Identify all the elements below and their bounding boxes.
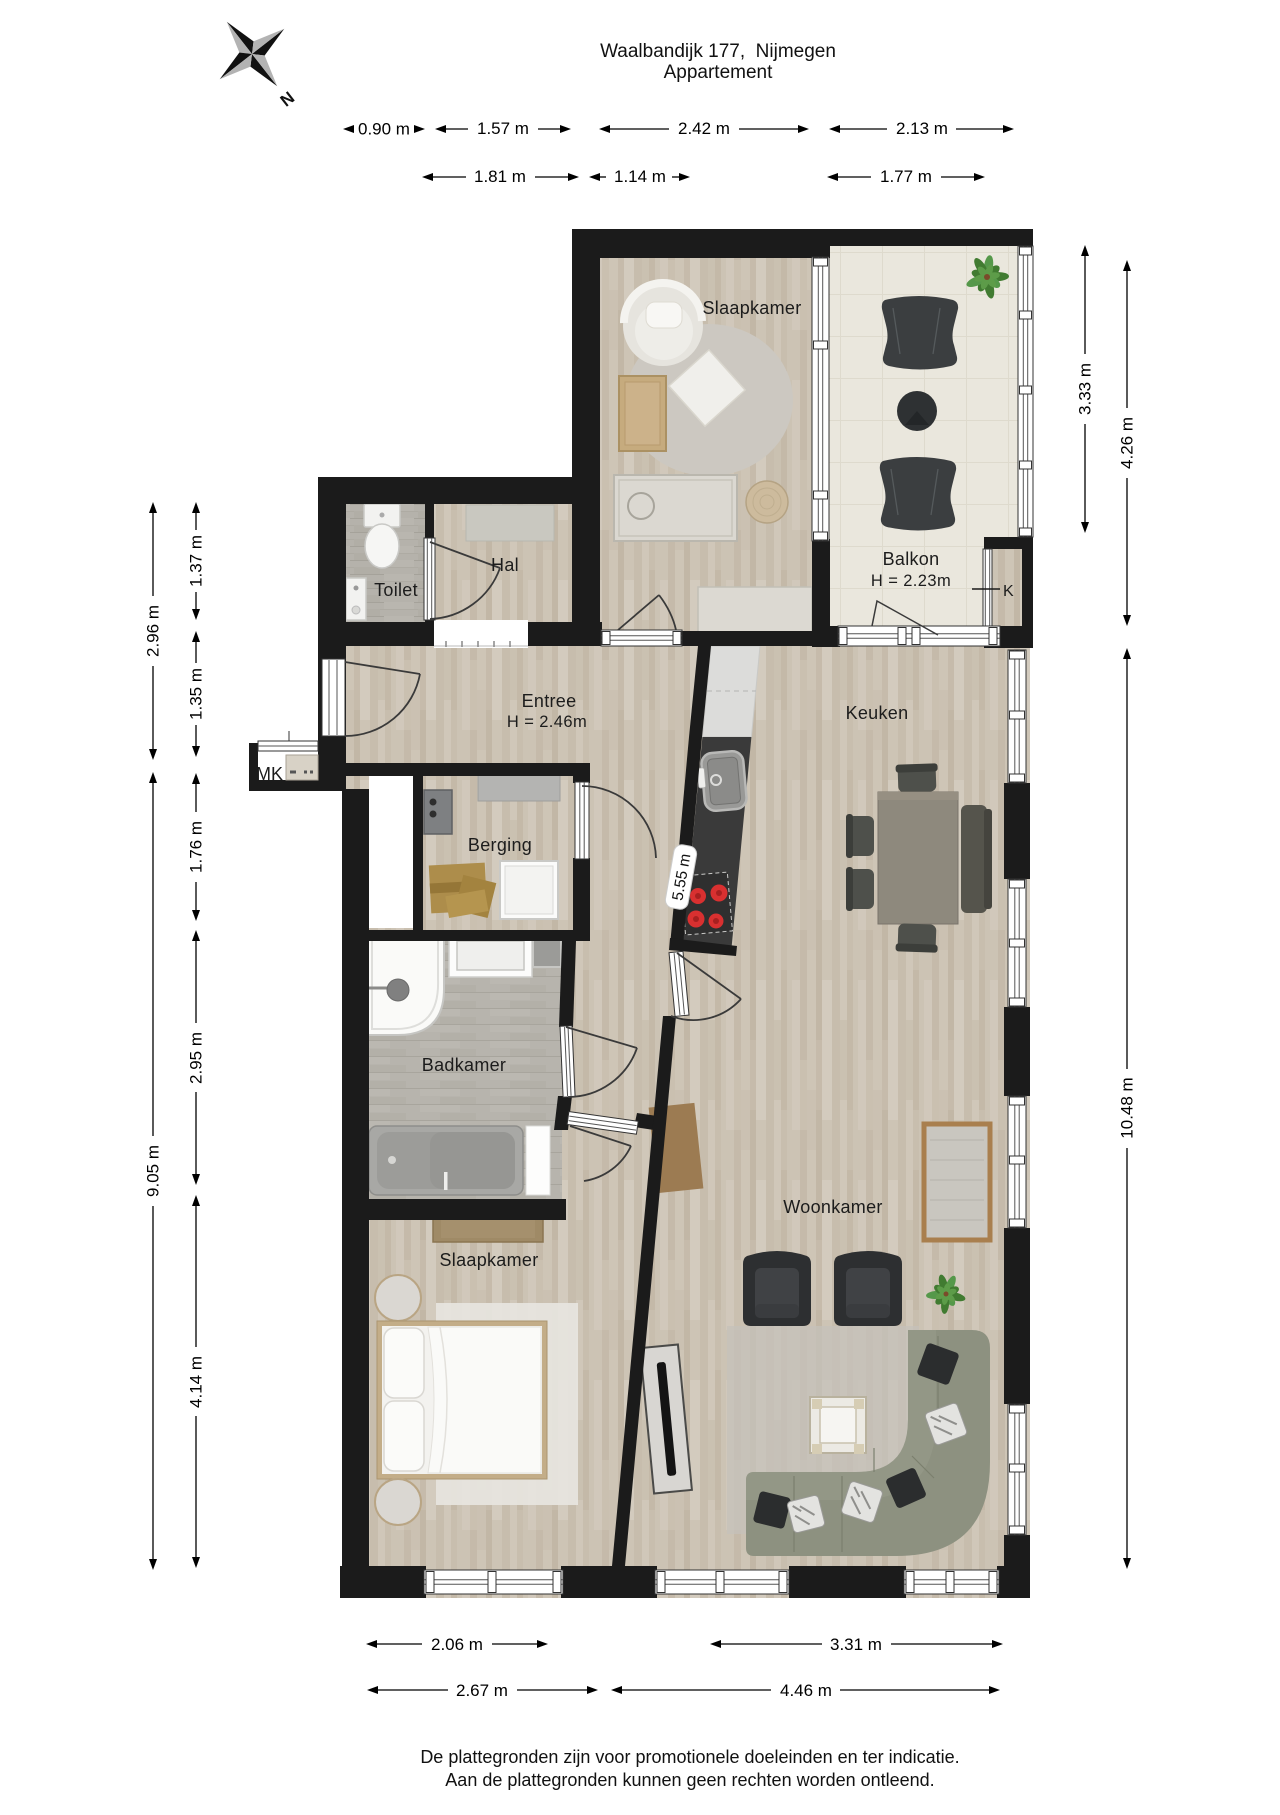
svg-text:0.90 m: 0.90 m [358, 120, 410, 139]
svg-text:Slaapkamer: Slaapkamer [439, 1250, 538, 1270]
svg-text:Waalbandijk 177, Nijmegen: Waalbandijk 177, Nijmegen [600, 41, 836, 62]
svg-text:MK: MK [256, 764, 283, 784]
svg-text:K: K [1003, 583, 1014, 600]
svg-text:1.77 m: 1.77 m [880, 167, 932, 186]
svg-text:Entree: Entree [522, 691, 577, 711]
svg-text:Woonkamer: Woonkamer [783, 1197, 882, 1217]
svg-text:Berging: Berging [468, 835, 532, 855]
svg-text:2.67 m: 2.67 m [456, 1681, 508, 1700]
svg-text:3.33 m: 3.33 m [1076, 363, 1095, 415]
svg-text:2.96 m: 2.96 m [144, 605, 163, 657]
svg-text:Toilet: Toilet [374, 580, 418, 600]
svg-text:Badkamer: Badkamer [422, 1055, 506, 1075]
svg-text:2.42 m: 2.42 m [678, 119, 730, 138]
svg-text:4.26 m: 4.26 m [1118, 417, 1137, 469]
svg-text:1.57 m: 1.57 m [477, 119, 529, 138]
svg-text:2.95 m: 2.95 m [187, 1032, 206, 1084]
svg-text:1.81 m: 1.81 m [474, 167, 526, 186]
svg-text:De plattegronden zijn voor pro: De plattegronden zijn voor promotionele … [420, 1747, 959, 1767]
svg-text:9.05 m: 9.05 m [144, 1145, 163, 1197]
svg-text:Keuken: Keuken [846, 703, 909, 723]
svg-text:H = 2.23m: H = 2.23m [871, 572, 951, 590]
svg-text:1.37 m: 1.37 m [187, 535, 206, 587]
svg-text:1.76 m: 1.76 m [187, 821, 206, 873]
svg-text:1.14 m: 1.14 m [614, 167, 666, 186]
svg-text:Slaapkamer: Slaapkamer [702, 298, 801, 318]
svg-text:4.46 m: 4.46 m [780, 1681, 832, 1700]
svg-text:10.48 m: 10.48 m [1118, 1077, 1137, 1138]
svg-text:H = 2.46m: H = 2.46m [507, 713, 587, 731]
svg-text:Aan de plattegronden kunnen ge: Aan de plattegronden kunnen geen rechten… [445, 1770, 934, 1790]
svg-text:Balkon: Balkon [883, 549, 940, 569]
svg-text:Appartement: Appartement [664, 62, 774, 83]
svg-text:3.31 m: 3.31 m [830, 1635, 882, 1654]
svg-text:2.13 m: 2.13 m [896, 119, 948, 138]
svg-text:1.35 m: 1.35 m [187, 668, 206, 720]
svg-text:Hal: Hal [491, 555, 519, 575]
svg-text:4.14 m: 4.14 m [187, 1356, 206, 1408]
svg-text:2.06 m: 2.06 m [431, 1635, 483, 1654]
